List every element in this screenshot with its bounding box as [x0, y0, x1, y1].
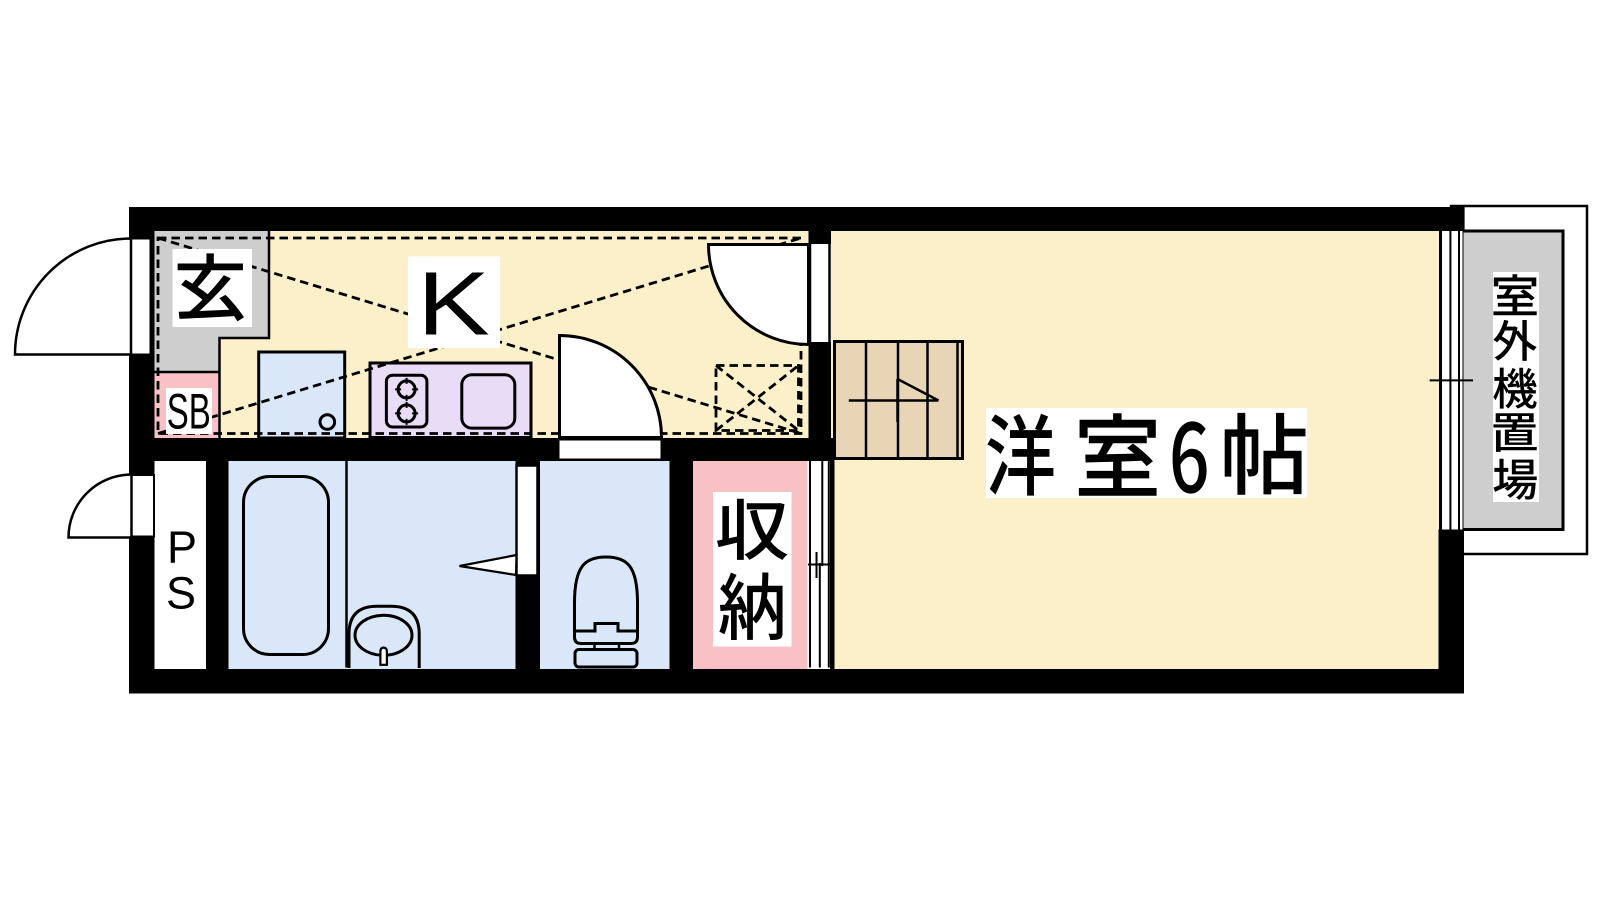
svg-text:K: K: [417, 254, 490, 354]
svg-text:SB: SB: [167, 383, 211, 440]
svg-text:P: P: [167, 522, 197, 573]
svg-text:S: S: [166, 568, 196, 619]
